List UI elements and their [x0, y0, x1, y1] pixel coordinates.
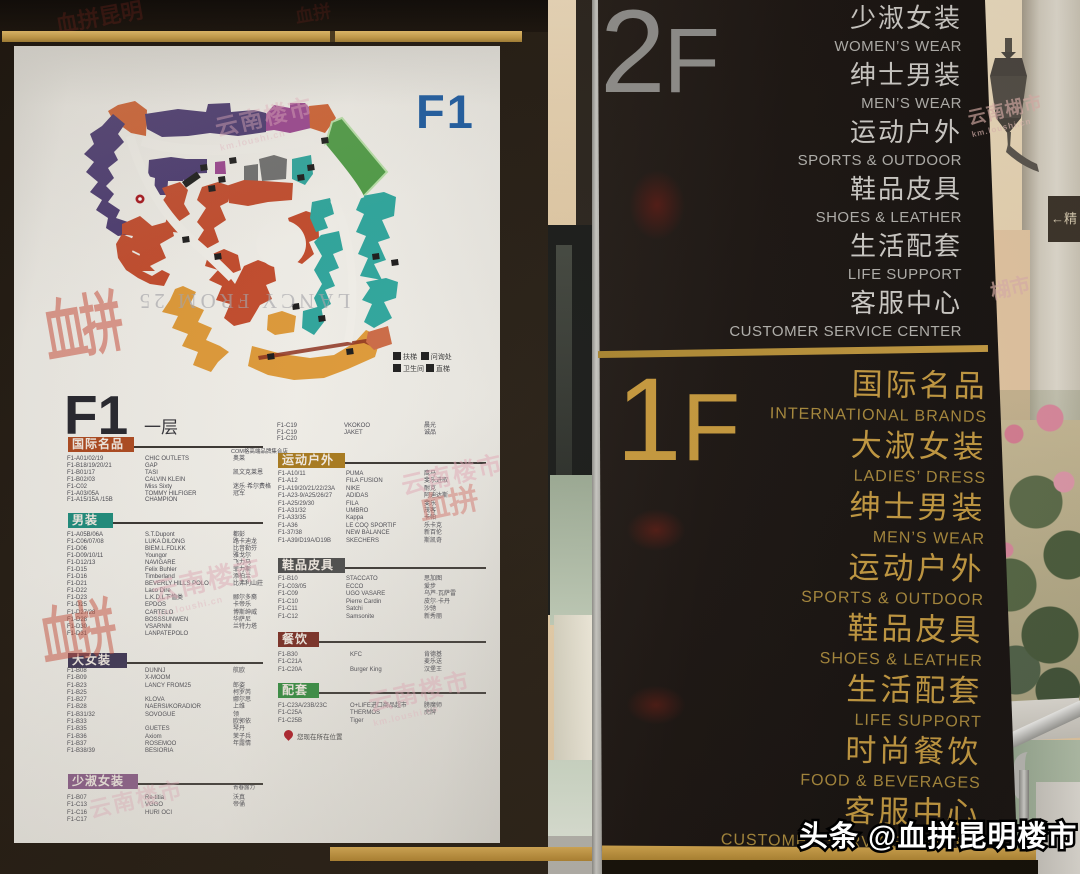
- svg-text:LANCY FROM 25: LANCY FROM 25: [136, 289, 351, 313]
- svg-text:头条 @血拼昆明楼市: 头条 @血拼昆明楼市: [799, 819, 1077, 853]
